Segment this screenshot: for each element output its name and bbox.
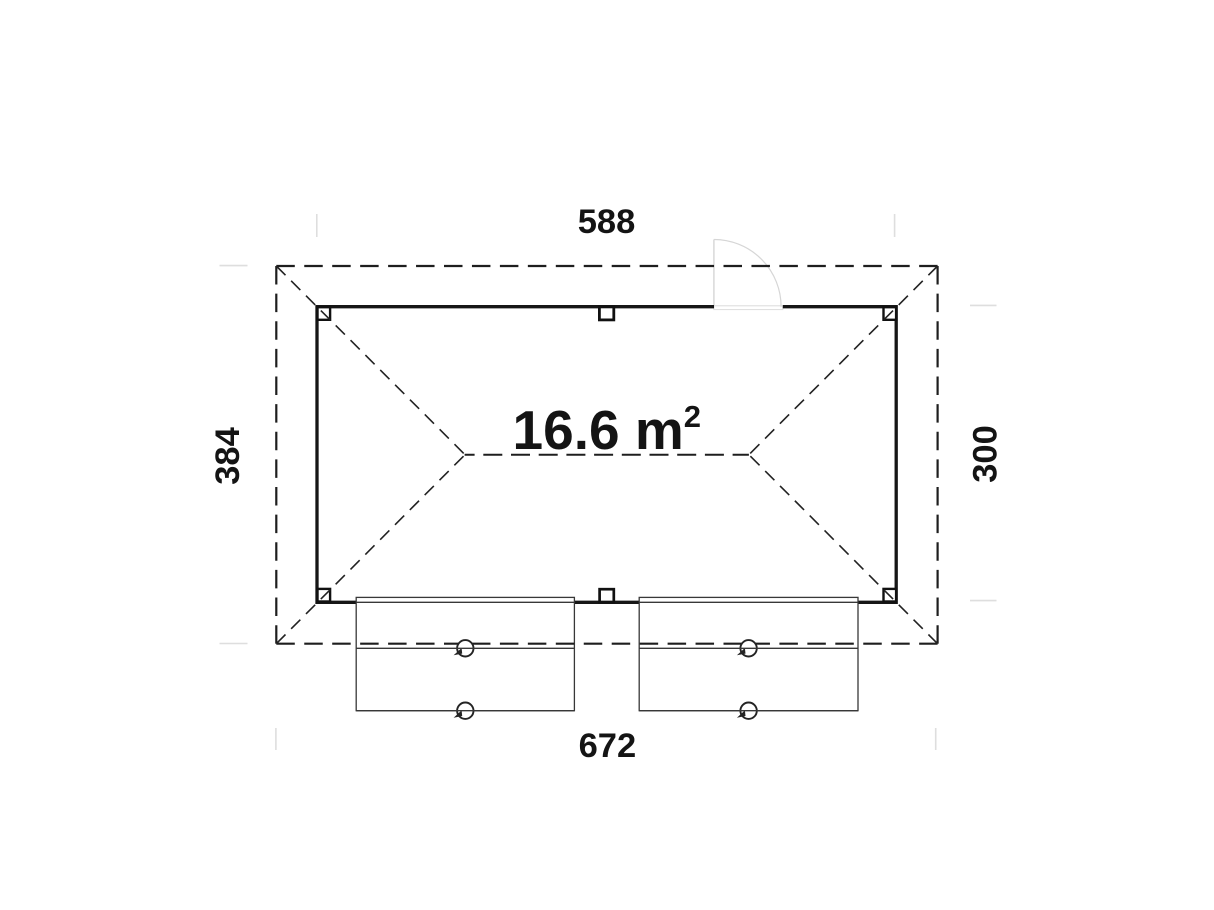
svg-text:672: 672 — [579, 727, 637, 765]
svg-text:588: 588 — [578, 203, 636, 241]
svg-text:384: 384 — [209, 427, 247, 485]
svg-text:300: 300 — [966, 425, 1004, 483]
svg-text:16.6 m2: 16.6 m2 — [513, 399, 701, 461]
